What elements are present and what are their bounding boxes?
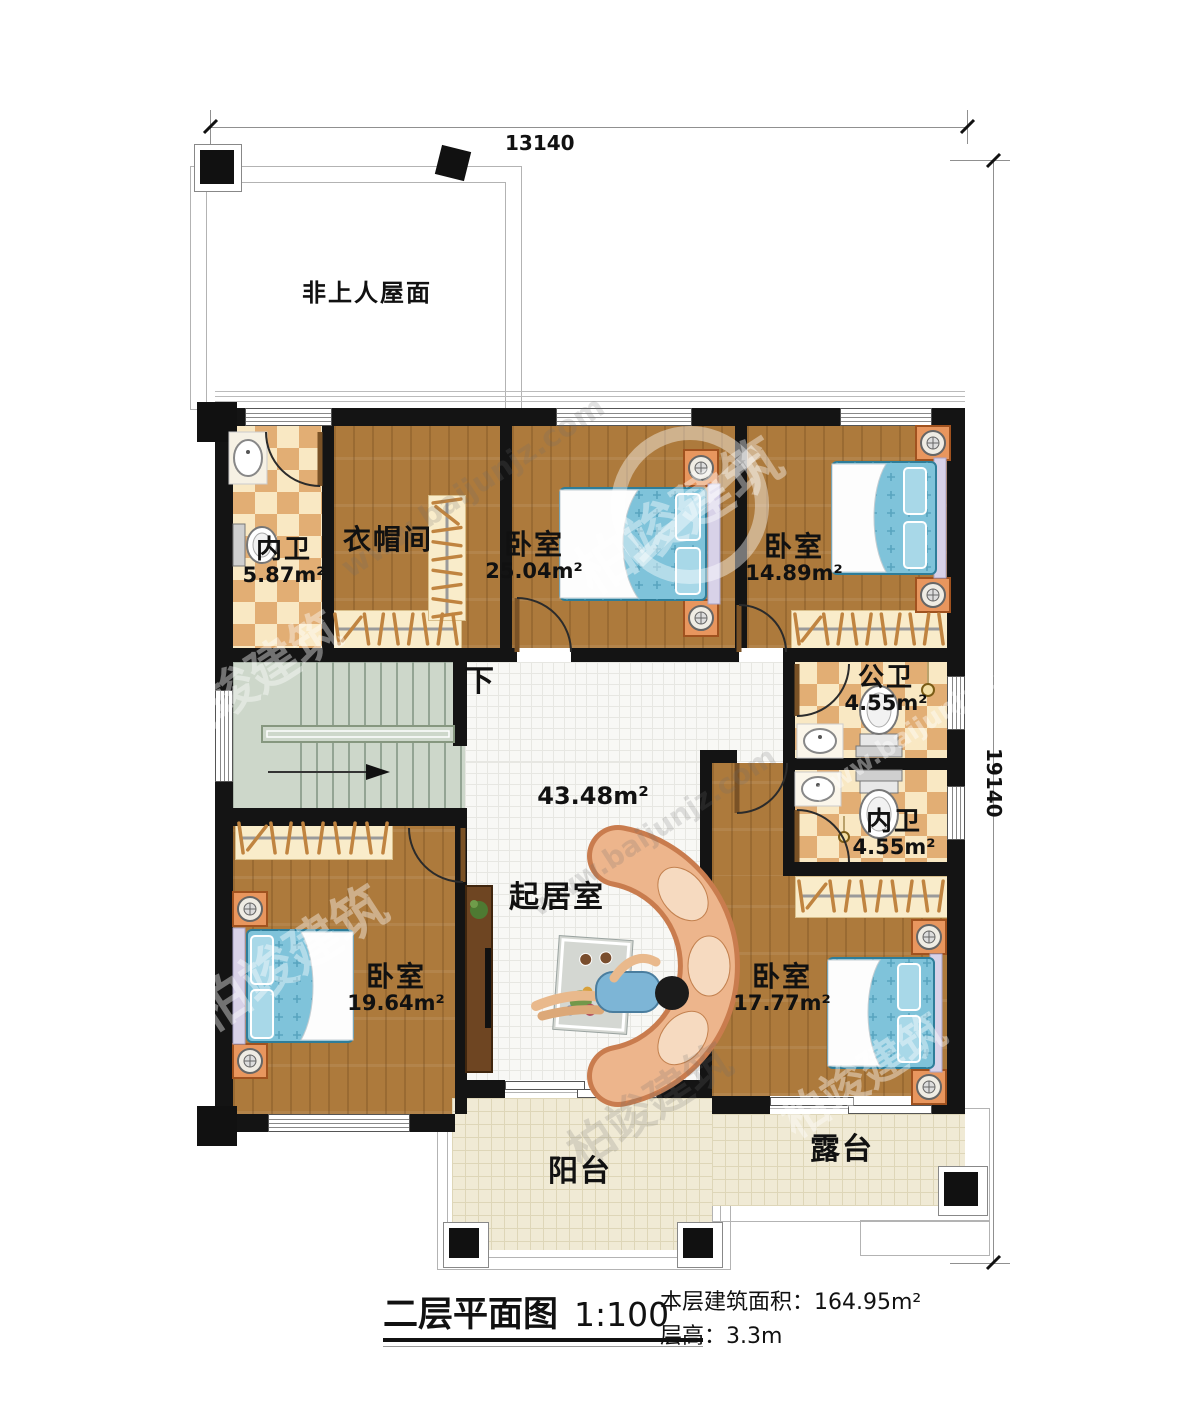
- column: [944, 1172, 978, 1206]
- room-label-bath1: 内卫 5.87m²: [228, 536, 340, 587]
- wall: [947, 408, 965, 676]
- wall: [215, 780, 233, 1114]
- corner-column: [197, 1106, 237, 1146]
- dim-ext: [950, 1263, 1010, 1264]
- column: [449, 1228, 479, 1258]
- dim-ext: [210, 110, 211, 144]
- wall: [783, 758, 947, 770]
- roof-column: [200, 150, 234, 184]
- wall: [700, 750, 737, 763]
- living-floor: [465, 662, 790, 762]
- roof-label: 非上人屋面: [282, 281, 452, 307]
- stairs-treads: [300, 662, 465, 808]
- column: [683, 1228, 713, 1258]
- window: [556, 408, 692, 426]
- title-underline: [383, 1338, 703, 1342]
- window: [245, 408, 332, 426]
- wall: [215, 648, 517, 662]
- dim-line-right: [993, 160, 994, 1264]
- room-label-bedroom4: 卧室 17.77m²: [716, 962, 848, 1015]
- dim-line-top: [210, 127, 968, 128]
- room-label-bathp: 公卫 4.55m²: [830, 664, 942, 715]
- wall: [712, 1096, 770, 1114]
- dim-right-value: 19140: [982, 748, 1006, 818]
- wall: [215, 808, 467, 826]
- room-label-bedroom1: 卧室 25.04m²: [468, 530, 600, 583]
- room-label-living: 起居室: [482, 882, 632, 914]
- room-label-bedroom3: 卧室 19.64m²: [330, 962, 462, 1015]
- sliding-door-panel: [577, 1089, 657, 1098]
- wall: [455, 808, 467, 1114]
- title-block: 二层平面图1:100: [383, 1286, 669, 1337]
- wall: [408, 1114, 455, 1132]
- plan-scale: 1:100: [574, 1295, 669, 1334]
- room-label-balcony: 阳台: [520, 1156, 640, 1188]
- wall: [690, 408, 840, 426]
- terrace-outline: [860, 1220, 990, 1256]
- window: [215, 690, 233, 782]
- sliding-door-panel: [770, 1097, 854, 1106]
- sliding-door-panel: [848, 1105, 932, 1114]
- wall: [947, 728, 965, 786]
- wardrobe: [791, 610, 949, 650]
- suite-corridor-floor: [712, 763, 783, 878]
- room-label-bath2: 内卫 4.55m²: [838, 808, 950, 859]
- dim-ext: [950, 160, 1010, 161]
- floor-area-line: 本层建筑面积：164.95m²: [660, 1284, 921, 1316]
- wall: [783, 648, 965, 662]
- dim-ext: [967, 110, 968, 144]
- room-label-bedroom2: 卧室 14.89m²: [728, 532, 860, 585]
- wall: [783, 862, 947, 876]
- eave-lines: [215, 391, 965, 404]
- wall: [655, 1080, 712, 1098]
- window: [947, 676, 965, 730]
- wall: [571, 648, 739, 662]
- room-label-terrace: 露台: [782, 1134, 902, 1166]
- room-label-living-area: 43.48m²: [528, 784, 658, 810]
- dim-top-value: 13140: [505, 131, 575, 155]
- room-label-cloakroom: 衣帽间: [328, 525, 448, 555]
- wall: [700, 763, 712, 1096]
- stairs-down-label: 下: [458, 666, 502, 698]
- plan-title: 二层平面图: [383, 1295, 558, 1335]
- corner-column: [197, 402, 237, 442]
- title-underline-thin: [383, 1346, 703, 1347]
- sliding-door-panel: [505, 1081, 585, 1090]
- window: [268, 1114, 410, 1132]
- wall: [930, 1096, 965, 1114]
- wall: [947, 838, 965, 1096]
- wardrobe: [795, 876, 949, 918]
- window: [840, 408, 932, 426]
- wardrobe: [428, 495, 466, 621]
- wall: [330, 408, 556, 426]
- wall: [455, 1080, 505, 1098]
- floor-plan-canvas: 非上人屋面 13140 19140: [0, 0, 1200, 1426]
- floor-height-line: 层高：3.3m: [660, 1318, 782, 1350]
